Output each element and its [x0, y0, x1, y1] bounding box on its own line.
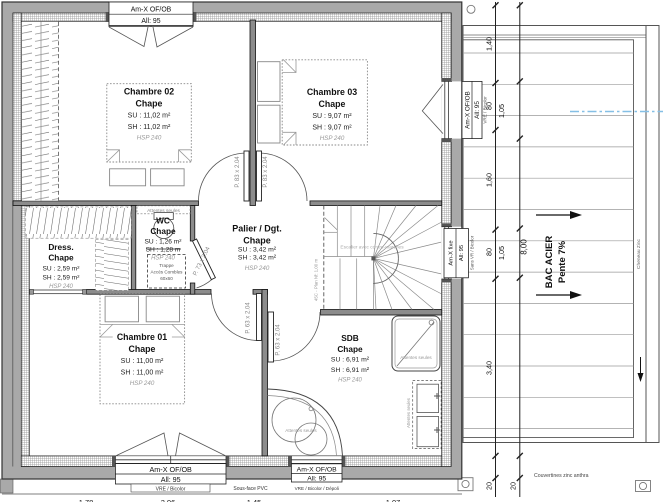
svg-text:SH : 9,07 m²: SH : 9,07 m² [312, 125, 352, 132]
svg-text:P. 83 x 2.04: P. 83 x 2.04 [263, 156, 269, 188]
svg-text:Chambre 02: Chambre 02 [124, 87, 174, 97]
svg-text:20: 20 [509, 482, 518, 490]
svg-text:SH : 3,42 m²: SH : 3,42 m² [238, 255, 277, 262]
svg-text:BAC ACIER: BAC ACIER [544, 236, 555, 289]
svg-text:Chape: Chape [136, 99, 163, 109]
svg-text:45C - Plan Nf: 1,00 m: 45C - Plan Nf: 1,00 m [314, 259, 319, 302]
svg-text:Chambre 03: Chambre 03 [307, 87, 357, 97]
svg-text:Chape: Chape [337, 344, 363, 354]
svg-text:SH : 11,00 m²: SH : 11,00 m² [121, 370, 164, 377]
svg-text:1,40: 1,40 [485, 37, 494, 51]
svg-text:Attentes seules: Attentes seules [285, 428, 317, 433]
svg-text:All: 95: All: 95 [141, 18, 160, 25]
svg-text:Am-X OF/OB: Am-X OF/OB [131, 7, 172, 14]
svg-text:SU : 1,26 m²: SU : 1,26 m² [144, 239, 182, 246]
svg-text:All: 95: All: 95 [161, 475, 181, 484]
svg-text:SDB: SDB [341, 333, 359, 343]
svg-text:Accès Combles: Accès Combles [151, 270, 184, 275]
svg-text:Cheneau Zinc: Cheneau Zinc [636, 238, 642, 268]
svg-text:1,60: 1,60 [485, 173, 494, 187]
svg-text:Couvertines zinc anthra: Couvertines zinc anthra [534, 473, 589, 479]
svg-text:HSP 240: HSP 240 [130, 380, 155, 387]
svg-text:SU : 11,02 m²: SU : 11,02 m² [128, 113, 171, 120]
svg-text:SU : 11,00 m²: SU : 11,00 m² [121, 358, 164, 365]
svg-text:Pente 7%: Pente 7% [557, 240, 568, 283]
svg-text:SH : 11,02 m²: SH : 11,02 m² [128, 124, 171, 131]
svg-text:Chape: Chape [150, 226, 176, 236]
svg-text:SH : 2,59 m²: SH : 2,59 m² [42, 275, 80, 282]
svg-text:Escalier avec contre-marches: Escalier avec contre-marches [340, 245, 404, 251]
svg-text:Sans VR / Bicolor: Sans VR / Bicolor [470, 235, 475, 270]
svg-text:SU : 9,07 m²: SU : 9,07 m² [312, 113, 352, 120]
svg-text:All: 95: All: 95 [307, 476, 326, 483]
svg-text:3,40: 3,40 [485, 361, 494, 375]
svg-text:HSP 240: HSP 240 [245, 265, 270, 272]
svg-text:Am-X fixe: Am-X fixe [449, 240, 455, 265]
svg-text:Chape: Chape [48, 253, 74, 263]
svg-text:P. 63 x 2.04: P. 63 x 2.04 [276, 324, 282, 356]
svg-text:VRE / Bicolor: VRE / Bicolor [156, 486, 186, 492]
svg-text:P. 83 x 2.04: P. 83 x 2.04 [235, 156, 241, 188]
svg-text:SH : 6,91 m²: SH : 6,91 m² [331, 367, 370, 374]
svg-text:1,45: 1,45 [247, 498, 261, 502]
svg-text:80: 80 [485, 248, 494, 256]
svg-text:VRE / Bicolor: VRE / Bicolor [483, 96, 488, 124]
svg-text:HSP 240: HSP 240 [338, 378, 362, 384]
svg-text:Attentes seules: Attentes seules [406, 397, 411, 428]
svg-text:Am-X OF/OB: Am-X OF/OB [465, 91, 472, 129]
svg-text:2,96: 2,96 [161, 498, 175, 502]
svg-text:Chambre 01: Chambre 01 [117, 332, 167, 342]
svg-text:Attentes seules: Attentes seules [400, 355, 432, 360]
svg-text:Palier / Dgt.: Palier / Dgt. [232, 224, 282, 234]
svg-text:Dress.: Dress. [48, 242, 73, 252]
svg-text:HSP 240: HSP 240 [49, 284, 73, 290]
svg-text:1,78: 1,78 [79, 498, 93, 502]
svg-text:HSP 240: HSP 240 [151, 256, 175, 262]
svg-text:8,00: 8,00 [520, 239, 529, 255]
svg-text:P. 63 x 2.04: P. 63 x 2.04 [246, 302, 252, 334]
svg-text:Sous-face PVC: Sous-face PVC [233, 486, 268, 492]
svg-text:Chape: Chape [243, 236, 271, 246]
svg-text:SH : 1,28 m: SH : 1,28 m [146, 247, 181, 254]
svg-text:Am-X OF/OB: Am-X OF/OB [150, 465, 193, 474]
svg-text:VRE / Bicolor / Dépoli: VRE / Bicolor / Dépoli [295, 486, 339, 491]
svg-text:Chape: Chape [319, 99, 346, 109]
svg-text:60x60: 60x60 [160, 276, 173, 281]
svg-text:20: 20 [485, 482, 494, 490]
svg-text:1,05: 1,05 [497, 104, 506, 118]
svg-text:SU : 3,42 m²: SU : 3,42 m² [238, 247, 277, 254]
svg-text:HSP 240: HSP 240 [320, 135, 345, 142]
svg-text:1,07: 1,07 [386, 498, 400, 502]
svg-text:Chape: Chape [129, 344, 156, 354]
svg-text:Trappe: Trappe [159, 263, 174, 268]
svg-text:All: 95: All: 95 [474, 101, 481, 119]
svg-text:Am-X OF/OB: Am-X OF/OB [297, 466, 337, 473]
svg-text:SU : 6,91 m²: SU : 6,91 m² [331, 357, 370, 364]
svg-text:1,05: 1,05 [497, 246, 506, 260]
svg-text:HSP 240: HSP 240 [137, 135, 162, 142]
svg-text:SU : 2,59 m²: SU : 2,59 m² [42, 266, 80, 273]
svg-text:WC: WC [156, 216, 170, 226]
svg-text:All: 95: All: 95 [459, 245, 465, 261]
